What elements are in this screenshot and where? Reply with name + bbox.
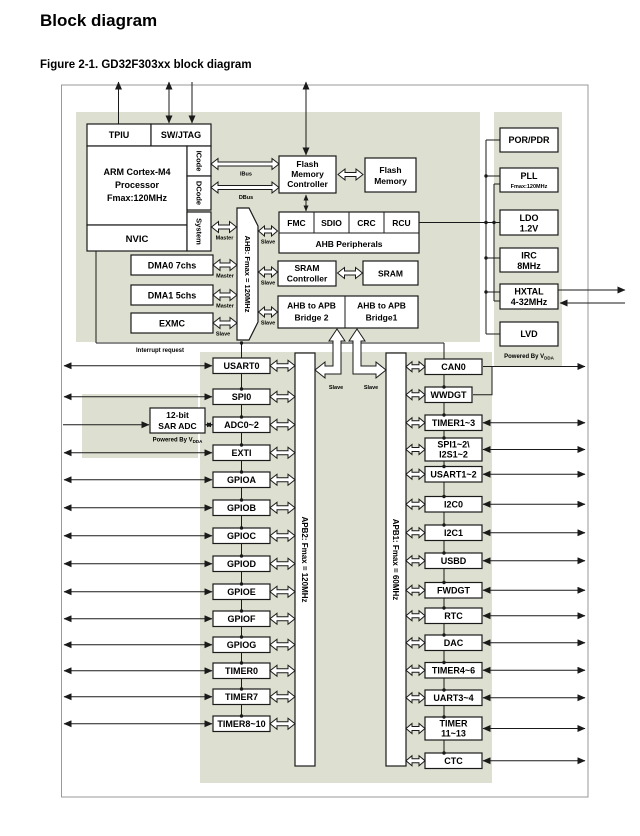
slave-label: Slave (364, 385, 378, 391)
flash-ctrl-line2: Memory (291, 169, 324, 179)
slave-label: Slave (261, 321, 275, 327)
page-title: Block diagram (40, 11, 157, 30)
junction-dot (442, 385, 445, 388)
peripheral-label: TIMER7 (225, 692, 258, 702)
ldo-line2: 1.2V (520, 224, 539, 234)
junction-dot (240, 609, 243, 612)
junction-dot (484, 256, 487, 259)
junction-dot (484, 290, 487, 293)
ldo-line1: LDO (520, 213, 539, 223)
peripheral-label: TIMER8~10 (217, 719, 265, 729)
slave-label: Slave (261, 281, 275, 287)
junction-dot (442, 606, 445, 609)
junction-dot (442, 715, 445, 718)
exmc-label: EXMC (159, 319, 186, 329)
cpu-cluster: TPIU SW/JTAG ARM Cortex-M4 Processor Fma… (87, 124, 211, 251)
junction-dot (484, 221, 487, 224)
junction-dot (484, 174, 487, 177)
peripheral-label: GPIOF (227, 614, 256, 624)
junction-dot (240, 341, 243, 344)
powered-by-vdda-label: Powered By VDDA (504, 354, 555, 361)
tpiu-label: TPIU (109, 130, 130, 140)
junction-dot (240, 387, 243, 390)
sram-ctrl-line2: Controller (287, 274, 328, 284)
peripheral-label: USART0 (223, 361, 259, 371)
junction-dot (442, 751, 445, 754)
peripheral-label: SPI0 (232, 392, 252, 402)
slave-label: Slave (329, 385, 343, 391)
bridge1-line2: Bridge1 (366, 313, 398, 323)
core-line3: Fmax:120MHz (107, 193, 168, 203)
junction-dot (442, 413, 445, 416)
sram-ctrl-line1: SRAM (294, 263, 319, 273)
sar-adc-line1: 12-bit (166, 410, 189, 420)
peripheral-label: TIMER1~3 (432, 418, 475, 428)
peripheral-label: USBD (441, 556, 467, 566)
ahb-matrix-label: AHB: Fmax = 120MHz (243, 236, 252, 313)
lvd-label: LVD (520, 329, 538, 339)
irc-line2: 8MHz (517, 261, 541, 271)
peripheral-label: 11~13 (441, 729, 466, 739)
figure-caption: Figure 2-1. GD32F303xx block diagram (40, 59, 252, 71)
dma1-label: DMA1 5chs (148, 291, 197, 301)
pll-label: PLL (521, 171, 539, 181)
apb2-bus-label: APB2: Fmax = 120MHz (300, 516, 309, 602)
bridge-cluster: AHB to APB Bridge 2 AHB to APB Bridge1 (278, 296, 418, 328)
block-diagram: Block diagram Figure 2-1. GD32F303xx blo… (0, 0, 640, 831)
junction-dot (240, 415, 243, 418)
peripheral-label: ADC0~2 (224, 420, 259, 430)
peripheral-label: FWDGT (437, 586, 470, 596)
system-label: System (194, 218, 203, 245)
peripheral-label: CAN0 (441, 362, 466, 372)
hxtal-line1: HXTAL (514, 287, 544, 297)
peripheral-label: TIMER4~6 (432, 666, 475, 676)
peripheral-label: GPIOD (227, 559, 257, 569)
peripheral-label: GPIOG (227, 640, 257, 650)
junction-dot (492, 221, 495, 224)
flash-ctrl-line1: Flash (296, 159, 318, 169)
icode-label: ICode (194, 151, 203, 172)
flash-ctrl-line3: Controller (287, 179, 328, 189)
junction-dot (240, 443, 243, 446)
peripheral-label: GPIOB (227, 503, 257, 513)
irc-line1: IRC (521, 251, 537, 261)
junction-dot (240, 554, 243, 557)
hxtal-line2: 4-32MHz (511, 297, 548, 307)
nvic-label: NVIC (126, 234, 149, 245)
junction-dot (442, 581, 445, 584)
peripheral-label: DAC (444, 638, 464, 648)
master-label: Master (216, 274, 235, 280)
bridge2-line2: Bridge 2 (294, 313, 328, 323)
peripheral-label: EXTI (231, 448, 251, 458)
slave-label: Slave (261, 240, 275, 246)
dma0-label: DMA0 7chs (148, 261, 197, 271)
master-label: Master (216, 236, 235, 242)
peripheral-label: GPIOA (227, 475, 257, 485)
ahb-peripherals-cluster: FMC SDIO CRC RCU AHB Peripherals (279, 212, 419, 253)
powered-by-vdda-label: Powered By VDDA (153, 438, 204, 445)
sram-label: SRAM (378, 269, 403, 279)
peripheral-label: I2S1~2 (439, 450, 468, 460)
ibus-label: IBus (240, 172, 252, 178)
junction-dot (442, 551, 445, 554)
junction-dot (240, 526, 243, 529)
datasheet-page: Block diagram Figure 2-1. GD32F303xx blo… (0, 0, 640, 831)
core-line2: Processor (115, 180, 160, 190)
pll-fmax-label: Fmax:120MHz (511, 184, 548, 190)
junction-dot (240, 470, 243, 473)
junction-dot (442, 495, 445, 498)
flash-memory-block (365, 158, 416, 192)
dbus-label: DBus (239, 195, 253, 201)
interrupt-label: Interrupt request (136, 348, 184, 354)
peripheral-label: USART1~2 (430, 470, 476, 480)
junction-dot (442, 633, 445, 636)
junction-dot (240, 498, 243, 501)
peripheral-label: GPIOE (227, 587, 256, 597)
dma-cluster: DMA0 7chs DMA1 5chs EXMC Master Master S… (131, 255, 237, 338)
flash-mem-line2: Memory (374, 176, 407, 186)
junction-dot (442, 436, 445, 439)
rcu-cell: RCU (392, 218, 410, 228)
bridge1-line1: AHB to APB (357, 301, 406, 311)
porpdr-label: POR/PDR (508, 135, 550, 145)
dcode-label: DCode (194, 181, 203, 205)
ahb-peripherals-label: AHB Peripherals (315, 239, 382, 249)
junction-dot (240, 635, 243, 638)
peripheral-label: RTC (444, 611, 463, 621)
junction-dot (240, 661, 243, 664)
peripheral-label: CTC (444, 756, 463, 766)
core-line1: ARM Cortex-M4 (103, 167, 170, 177)
peripheral-label: TIMER (440, 719, 468, 729)
sar-adc-line2: SAR ADC (158, 421, 196, 431)
peripheral-label: WWDGT (431, 390, 467, 400)
swjtag-label: SW/JTAG (161, 130, 201, 140)
sdio-cell: SDIO (321, 218, 342, 228)
master-label: Master (216, 304, 235, 310)
fmc-cell: FMC (287, 218, 305, 228)
junction-dot (442, 661, 445, 664)
apb1-bus-label: APB1: Fmax = 60MHz (391, 519, 400, 601)
junction-dot (442, 688, 445, 691)
junction-dot (442, 465, 445, 468)
junction-dot (240, 714, 243, 717)
peripheral-label: UART3~4 (433, 693, 473, 703)
flash-mem-line1: Flash (379, 165, 401, 175)
bridge2-line1: AHB to APB (287, 301, 336, 311)
peripheral-label: SPI1~2\ (437, 440, 470, 450)
peripheral-label: TIMER0 (225, 666, 258, 676)
peripheral-label: I2C0 (444, 500, 463, 510)
peripheral-label: GPIOC (227, 531, 257, 541)
junction-dot (240, 582, 243, 585)
slave-label: Slave (216, 332, 230, 338)
crc-cell: CRC (357, 218, 375, 228)
junction-dot (240, 687, 243, 690)
junction-dot (442, 523, 445, 526)
peripheral-label: I2C1 (444, 528, 463, 538)
